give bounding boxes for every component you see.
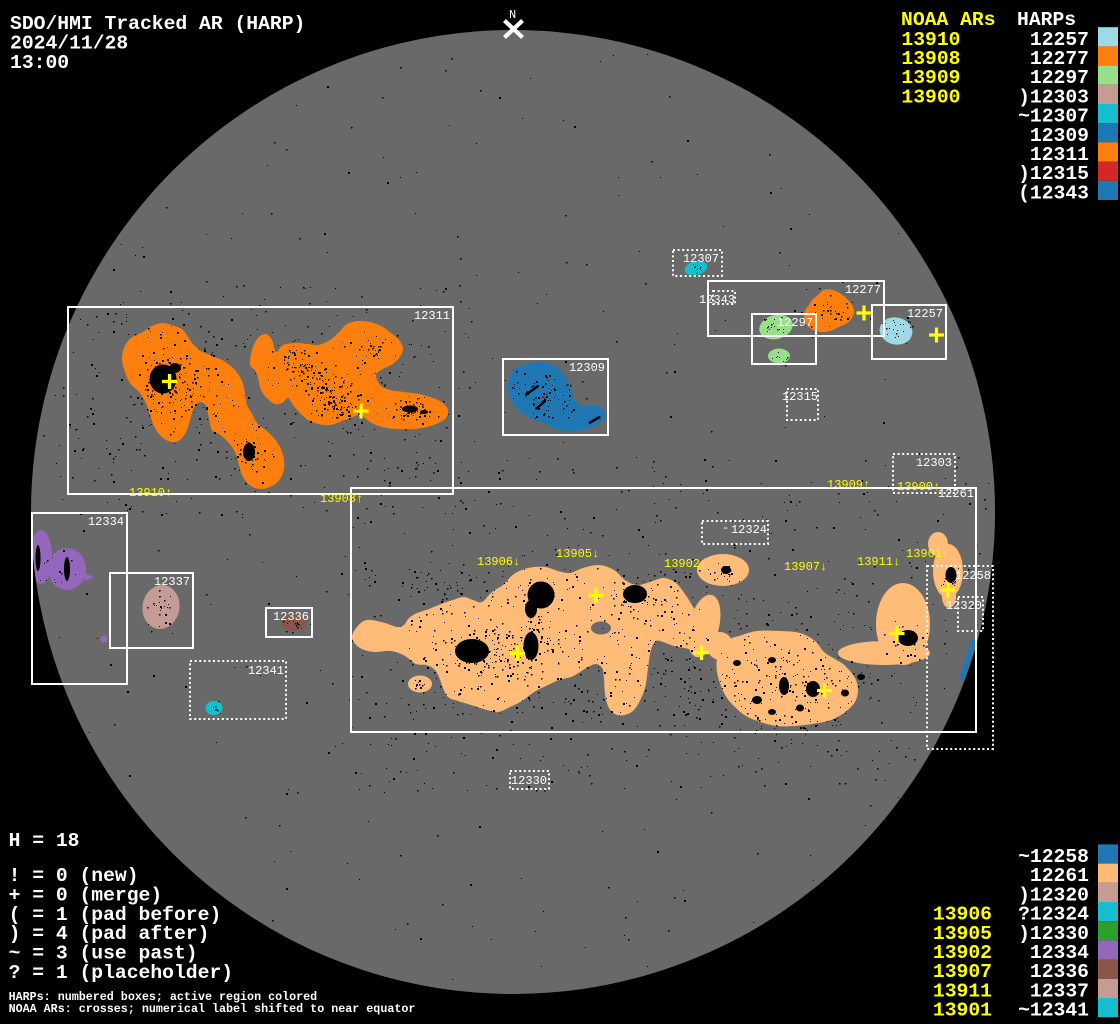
svg-text:12334: 12334 — [88, 515, 124, 529]
svg-text:12315: 12315 — [782, 390, 818, 404]
svg-text:NOAA ARs: crosses; numerical l: NOAA ARs: crosses; numerical label shift… — [9, 1002, 416, 1016]
svg-text:~12341: ~12341 — [1018, 1000, 1089, 1022]
svg-text:13906↓: 13906↓ — [477, 555, 520, 569]
svg-text:HARPs: HARPs — [1017, 9, 1076, 31]
svg-text:13901: 13901 — [933, 1000, 992, 1022]
svg-text:12324: 12324 — [731, 523, 767, 537]
svg-text:12330: 12330 — [511, 774, 547, 788]
svg-text:? = 1 (placeholder): ? = 1 (placeholder) — [9, 962, 233, 984]
svg-text:H = 18: H = 18 — [9, 830, 80, 852]
svg-text:12261: 12261 — [938, 487, 974, 501]
svg-text:12277: 12277 — [845, 283, 881, 297]
svg-text:12336: 12336 — [273, 610, 309, 624]
svg-text:12309: 12309 — [569, 361, 605, 375]
svg-text:12320: 12320 — [946, 599, 982, 613]
svg-text:12258: 12258 — [955, 569, 991, 583]
svg-text:13911↓: 13911↓ — [857, 555, 900, 569]
svg-text:13900↑: 13900↑ — [897, 480, 940, 494]
svg-text:13902↓: 13902↓ — [664, 557, 707, 571]
svg-text:12257: 12257 — [907, 307, 943, 321]
svg-text:13901↓: 13901↓ — [906, 547, 949, 561]
svg-text:(12343: (12343 — [1018, 182, 1089, 204]
svg-text:-: - — [722, 521, 729, 535]
svg-text:13900: 13900 — [901, 86, 960, 108]
svg-text:12307: 12307 — [683, 252, 719, 266]
svg-text:13:00: 13:00 — [10, 52, 69, 74]
svg-text:12343: 12343 — [699, 293, 735, 307]
svg-text:12303: 12303 — [916, 456, 952, 470]
svg-text:12341: 12341 — [248, 664, 284, 678]
svg-text:12297: 12297 — [777, 316, 813, 330]
svg-text:12311: 12311 — [414, 309, 450, 323]
svg-text:13910↑: 13910↑ — [129, 486, 172, 500]
svg-text:N: N — [509, 8, 516, 22]
svg-text:13907↓: 13907↓ — [784, 560, 827, 574]
svg-text:13909↑: 13909↑ — [827, 478, 870, 492]
svg-text:13908↑: 13908↑ — [320, 492, 363, 506]
svg-text:NOAA ARs: NOAA ARs — [901, 9, 996, 31]
svg-text:13905↓: 13905↓ — [556, 547, 599, 561]
svg-text:12337: 12337 — [154, 575, 190, 589]
